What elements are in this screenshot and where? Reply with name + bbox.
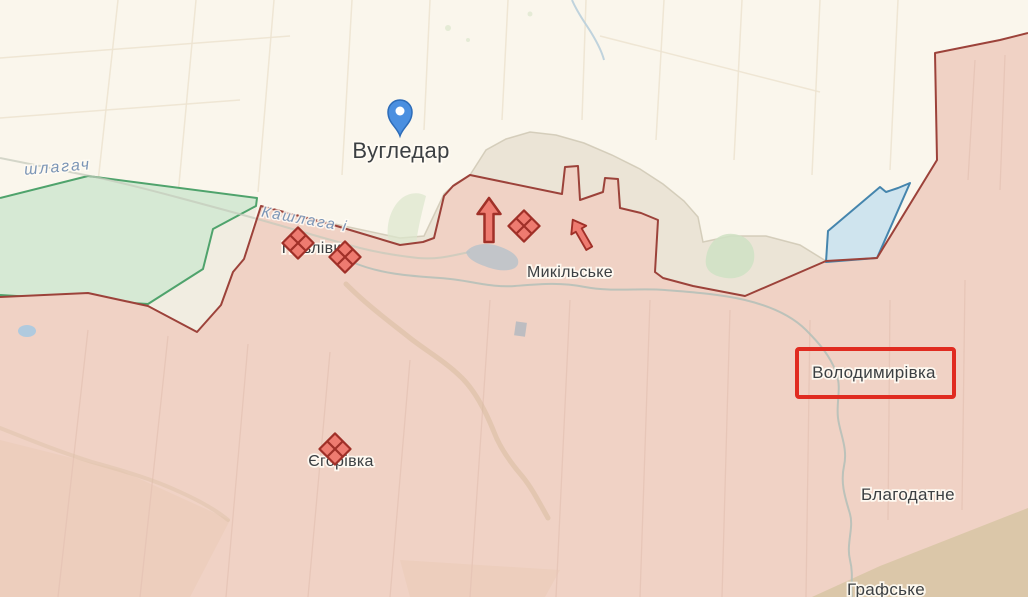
place-label-volodymyrivka: Володимирівка bbox=[812, 363, 936, 382]
place-label-blahodatne: Благодатне bbox=[861, 485, 955, 504]
map-canvas[interactable]: шлагачКашлага і ВугледарПавлівкаМикільсь… bbox=[0, 0, 1028, 597]
place-label-vuhledar: Вугледар bbox=[352, 138, 449, 163]
place-label-mykilske: Микільське bbox=[527, 264, 613, 281]
map-viewport: шлагачКашлага і ВугледарПавлівкаМикільсь… bbox=[0, 0, 1028, 597]
place-label-hrafske: Графське bbox=[847, 580, 925, 597]
